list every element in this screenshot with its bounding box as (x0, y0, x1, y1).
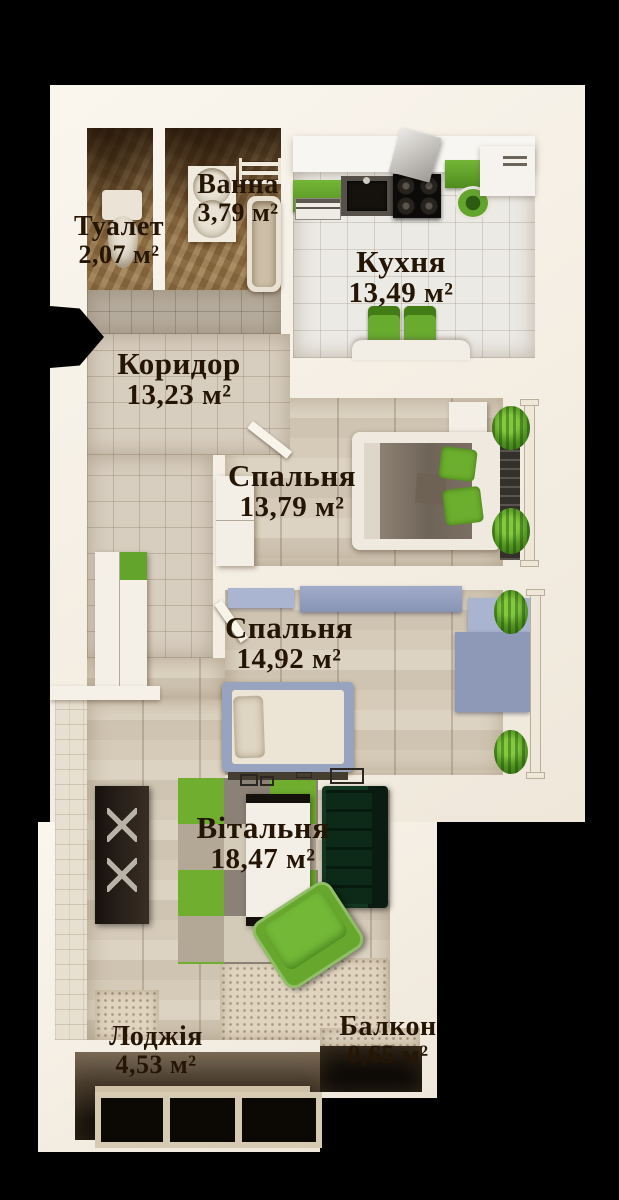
bedroom-2-single-bed (222, 682, 354, 772)
slippers (260, 776, 274, 786)
tv-stand-leg (107, 808, 137, 842)
corridor-living-wall-stub (50, 686, 160, 700)
plant (494, 730, 528, 774)
plant (492, 406, 530, 450)
room-area: 13,79 м² (228, 492, 356, 522)
room-area: 3,79 м² (197, 199, 278, 226)
room-label-toilet: Туалет 2,07 м² (74, 212, 164, 268)
room-area: 14,92 м² (225, 644, 353, 674)
tv-stand-leg (107, 858, 137, 892)
room-label-bedroom-2: Спальня 14,92 м² (225, 612, 353, 674)
room-name: Ванна (197, 170, 278, 199)
room-area: 0,65 м² (339, 1041, 436, 1068)
room-label-loggia: Лоджія 4,53 м² (109, 1022, 203, 1078)
room-name: Спальня (225, 612, 353, 644)
plant (494, 590, 528, 634)
room-area: 13,23 м² (117, 380, 240, 410)
corridor-wardrobe (95, 552, 147, 692)
bedroom-2-window (530, 592, 541, 776)
room-label-corridor: Коридор 13,23 м² (117, 348, 240, 410)
room-name: Спальня (228, 460, 356, 492)
green-pillow (442, 486, 484, 526)
room-label-kitchen: Кухня 13,49 м² (349, 246, 454, 308)
bedroom-2-top-cabinet (300, 586, 462, 612)
bed-fold (364, 443, 380, 539)
room-area: 18,47 м² (196, 844, 329, 874)
small-item (296, 772, 312, 778)
slippers (240, 774, 258, 786)
room-name: Туалет (74, 212, 164, 241)
green-pillow (438, 446, 478, 482)
room-name: Балкон (339, 1012, 436, 1041)
kitchen-stove (393, 174, 441, 218)
room-area: 2,07 м² (74, 241, 164, 268)
book (330, 768, 364, 784)
tv-stand (95, 786, 149, 924)
room-label-living-room: Вітальня 18,47 м² (196, 812, 329, 874)
kitchen-table (352, 340, 470, 360)
floor-plan-canvas: Туалет 2,07 м² Ванна 3,79 м² Кухня 13,49… (0, 0, 619, 1200)
kitchen-oven (295, 198, 341, 220)
vestibule-floor (87, 290, 281, 334)
bed-pillow (233, 695, 265, 758)
room-name: Вітальня (196, 812, 329, 844)
room-name: Лоджія (109, 1022, 203, 1051)
bedroom-1-nightstand (449, 402, 487, 434)
room-name: Коридор (117, 348, 240, 380)
room-label-balcony: Балкон 0,65 м² (339, 1012, 436, 1068)
bedroom-2-bench (228, 588, 294, 608)
bedroom-1-double-bed (352, 432, 502, 550)
room-name: Кухня (349, 246, 454, 278)
room-area: 4,53 м² (109, 1051, 203, 1078)
room-area: 13,49 м² (349, 278, 454, 308)
kitchen-sink-unit (341, 176, 393, 216)
plant (492, 508, 530, 554)
room-label-bedroom-1: Спальня 13,79 м² (228, 460, 356, 522)
kitchen-counter-right (480, 146, 535, 196)
living-left-wall-texture (55, 700, 87, 1040)
loggia-window (95, 1092, 322, 1148)
bedroom-2-desk (455, 632, 530, 712)
room-label-bath: Ванна 3,79 м² (197, 170, 278, 226)
